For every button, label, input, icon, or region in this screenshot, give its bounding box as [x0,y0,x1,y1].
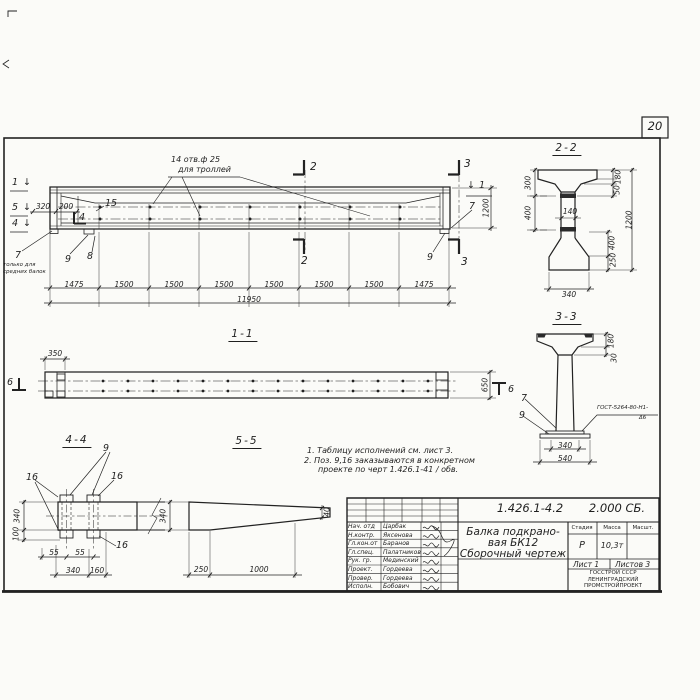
name-label: Мединский [383,558,419,564]
sheet-number: 20 [648,121,663,133]
mass-value: 10,3т [601,542,623,550]
role-label: Исполн. [348,584,373,590]
name-label: Баранов [383,541,409,547]
name-label: Гордеева [383,576,413,582]
note-middle-beams-line1: только для [3,263,35,269]
dim-180: 180 [614,170,622,184]
section-3-3-title: 3-3 [552,312,581,325]
sheet-count-label: Лист 1 [573,561,599,569]
drawing-linework [0,0,700,700]
dim-40-tip: 40 [323,507,331,517]
cut-mark-3-bottom: 3 [461,257,468,268]
name-label: Бобович [383,584,409,590]
drawing-title-line2: вая БК12 [488,538,538,549]
name-label: Яксенова [383,533,413,539]
down-arrow-icon: ↓ [23,203,31,213]
dim-100-vert: 100 [12,527,20,541]
dim-250: 250 [609,253,617,267]
dim-340-vert: 340 [159,509,167,523]
name-label: Палатников [383,550,421,556]
pos-label-7: 7 [521,394,527,404]
pos-label-7-right: 7 [469,202,475,212]
cut-mark-1-right: 1 [479,181,485,191]
view-5-5 [164,500,330,578]
dim-30: 30 [610,353,618,363]
drawing-title-line1: Балка подкрано- [466,527,560,538]
dim-200: 200 [59,203,73,211]
pos-label-16-bottom: 16 [116,541,128,551]
dim-300: 300 [524,176,532,190]
role-label: Гл.спец. [348,550,374,556]
note-line-1: 1. Таблицу исполнений см. лист 3. [307,447,453,455]
dim-250: 250 [194,566,208,574]
role-label: Проект. [348,567,373,573]
dim-segment: 1500 [164,281,183,289]
pos-label-9: 9 [519,411,525,421]
dim-320: 320 [36,203,50,211]
cut-mark-2-bottom: 2 [301,256,308,267]
stage-header: Стадия [571,526,592,532]
pos-label-8: 8 [87,252,93,262]
dim-segment: 1500 [314,281,333,289]
dim-540: 540 [558,455,572,463]
dim-50: 50 [613,185,621,195]
dim-340: 340 [562,291,576,299]
note-middle-beams-line2: средних балок [3,270,46,276]
dim-segment: 1500 [264,281,283,289]
view-1-1-title: 1-1 [228,329,257,342]
pos-label-9-left: 9 [65,255,71,265]
dim-340: 340 [558,442,572,450]
mass-header: Масса [603,526,621,532]
view-4-4-title: 4-4 [62,435,91,448]
name-label: Гордеева [383,567,413,573]
doc-number: 1.426.1-4.2 [497,503,563,515]
drawing-sheet: 20 14 отв.ф 25 для троллей 1 ↓ 5 ↓ 4 ↓ 4… [0,0,700,700]
dim-340-vert: 340 [13,509,21,523]
weld-note-line1: ГОСТ-5264-80-Н1- [597,406,648,412]
dim-segment: 1475 [64,281,83,289]
dim-140: 140 [563,208,577,216]
stage-value: Р [579,541,585,551]
dim-55b: 55 [75,549,85,557]
holes-callout-line2: для троллей [178,166,231,174]
role-label: Н.контр. [348,533,375,539]
note-line-2: 2. Поз. 9,16 заказываются в конкретном [304,457,475,465]
dim-segment: 1500 [364,281,383,289]
note-line-3: проекте по черт 1.426.1-41 / обв. [318,466,458,474]
dim-400-right: 400 [608,236,616,250]
name-label: Царбак [383,524,406,530]
role-label: Провер. [348,576,373,582]
org-line3: ПРОМСТРОЙПРОЕКТ [584,584,642,590]
drawing-title-line3: Сборочный чертеж [460,549,566,560]
dim-1200: 1200 [625,210,633,229]
pos-label-16-right: 16 [111,472,123,482]
role-label: Гл.кон.от [348,541,377,547]
dim-total-11950: 11950 [237,296,261,304]
signature-squiggles [423,526,454,590]
pos-label-16-left: 16 [26,473,38,483]
view-5-5-title: 5-5 [232,436,261,449]
holes-callout-line1: 14 отв.ф 25 [171,156,220,164]
cut-mark-3-top: 3 [464,159,471,170]
down-arrow-icon: ↓ [467,181,475,191]
scale-header: Масшт. [632,526,653,532]
cut-mark-1-left: 1 [12,178,18,188]
cut-mark-6-left: 6 [7,378,13,388]
dim-height-1200: 1200 [482,198,490,217]
cut-mark-4-inner: 4 [79,213,85,223]
dim-1000: 1000 [249,566,268,574]
section-2-2-title: 2-2 [552,143,581,156]
view-4-4 [19,452,168,578]
dim-segment: 1500 [214,281,233,289]
view-1-1 [12,356,506,400]
weld-note-line2: Δ6 [639,416,646,422]
dim-350: 350 [48,350,62,358]
down-arrow-icon: ↓ [23,178,31,188]
dim-400-left: 400 [524,206,532,220]
dim-160: 160 [90,567,104,575]
dim-55a: 55 [49,549,59,557]
cut-mark-2-top: 2 [310,162,317,173]
pos-label-7-left: 7 [15,251,21,261]
cut-mark-4-left: 4 [12,219,18,229]
dim-180: 180 [607,334,615,348]
doc-code: 2.000 СБ. [589,503,645,515]
dim-650: 650 [481,378,489,392]
dim-340: 340 [66,567,80,575]
sheets-total-label: Листов 3 [615,561,650,569]
cut-mark-5-left: 5 [12,203,18,213]
cut-mark-6-right: 6 [508,385,514,395]
role-label: Рук. гр. [348,558,371,564]
dim-segment: 1500 [114,281,133,289]
pos-label-15: 15 [105,199,117,209]
role-label: Нач. отд [348,524,375,530]
section-3-3 [523,332,658,465]
down-arrow-icon: ↓ [23,219,31,229]
pos-label-9-right: 9 [427,253,433,263]
pos-label-9: 9 [103,444,109,454]
dim-segment: 1475 [414,281,433,289]
